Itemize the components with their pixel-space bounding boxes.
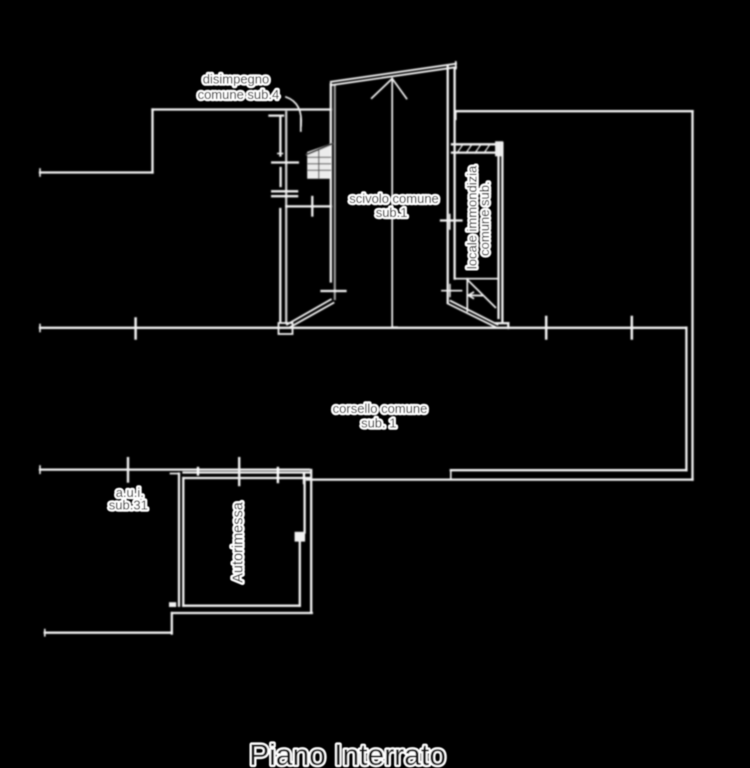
svg-text:scivolo comune: scivolo comune [349, 191, 439, 206]
svg-text:sub. 1: sub. 1 [361, 415, 396, 430]
svg-text:sub.31: sub.31 [109, 497, 148, 512]
svg-text:Autorimessa: Autorimessa [231, 501, 247, 583]
svg-text:comune sub.4: comune sub.4 [198, 87, 280, 102]
svg-text:corsello comune: corsello comune [333, 401, 428, 416]
svg-text:disimpegno: disimpegno [203, 72, 270, 87]
svg-text:comune sub.: comune sub. [477, 181, 492, 255]
svg-text:Piano Interrato: Piano Interrato [249, 739, 446, 768]
svg-text:sub.1: sub.1 [376, 205, 408, 220]
